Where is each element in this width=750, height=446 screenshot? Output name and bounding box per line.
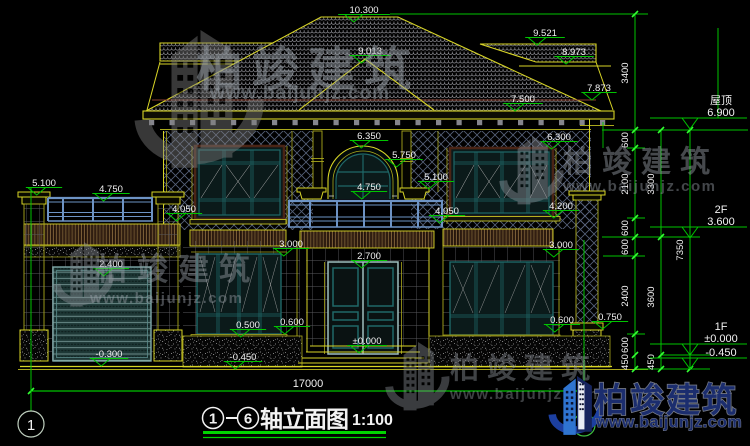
svg-text:2400: 2400 xyxy=(620,285,631,306)
svg-text:3.600: 3.600 xyxy=(707,216,735,228)
svg-text:600: 600 xyxy=(620,220,631,236)
svg-text:7350: 7350 xyxy=(675,239,686,260)
svg-text:轴立面图: 轴立面图 xyxy=(260,406,348,432)
svg-text:450: 450 xyxy=(646,354,657,370)
svg-text:600: 600 xyxy=(620,239,631,255)
svg-text:6.900: 6.900 xyxy=(707,107,735,119)
svg-text:www.baijunjz.com: www.baijunjz.com xyxy=(209,83,390,104)
svg-text:柏竣建筑: 柏竣建筑 xyxy=(563,145,719,179)
svg-text:17000: 17000 xyxy=(293,378,324,390)
svg-text:1F: 1F xyxy=(715,321,728,333)
svg-text:www.baijunjz.com: www.baijunjz.com xyxy=(595,414,742,431)
svg-text:6: 6 xyxy=(244,411,252,428)
svg-text:-0.450: -0.450 xyxy=(705,347,736,359)
svg-text:450: 450 xyxy=(620,354,631,370)
svg-text:1:100: 1:100 xyxy=(352,412,393,429)
svg-text:柏竣建筑: 柏竣建筑 xyxy=(450,351,598,385)
svg-text:屋顶: 屋顶 xyxy=(710,94,732,107)
svg-text:2F: 2F xyxy=(715,204,728,216)
svg-text:www.baijunjz.com: www.baijunjz.com xyxy=(562,178,716,195)
svg-text:3400: 3400 xyxy=(620,62,631,83)
svg-text:1: 1 xyxy=(27,417,35,434)
svg-text:www.baijunjz.com: www.baijunjz.com xyxy=(89,290,243,307)
svg-text:柏竣建筑: 柏竣建筑 xyxy=(96,252,260,287)
svg-text:±0.000: ±0.000 xyxy=(704,333,738,345)
svg-text:1: 1 xyxy=(209,411,217,428)
svg-text:3600: 3600 xyxy=(646,286,657,307)
svg-text:600: 600 xyxy=(620,337,631,353)
